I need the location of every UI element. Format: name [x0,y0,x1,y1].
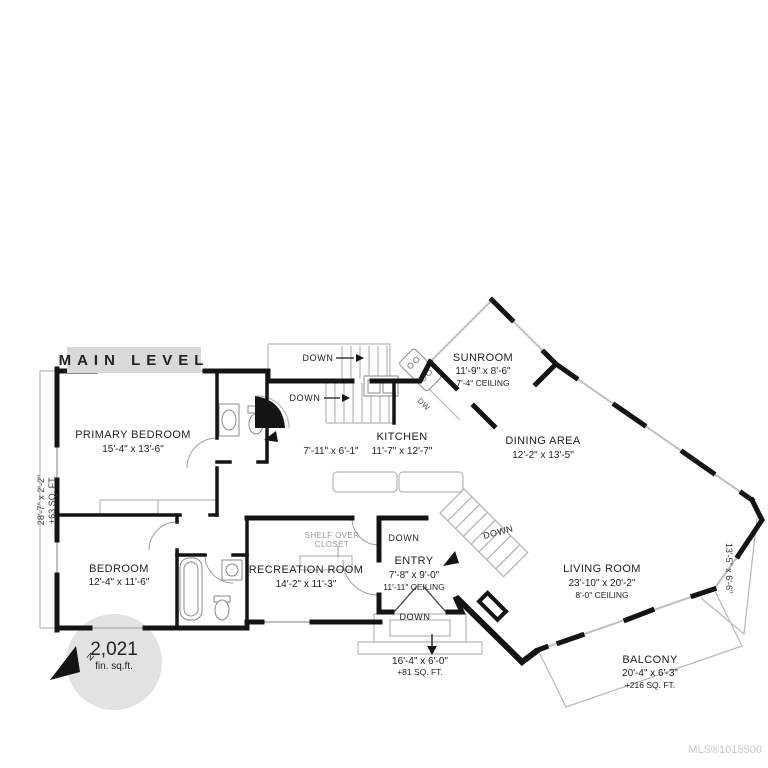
floor-plan-page: MAIN LEVEL PRIMARY BEDROOM 15'-4" x 13'-… [0,0,768,768]
down-arrow-entry-stair [443,551,459,566]
down-label-interior-stair: DOWN [290,393,321,403]
total-area-value: 2,021 [90,639,138,660]
left-deck-dims: 28'-7" x 2'-2" [36,475,46,525]
front-steps-inner [390,620,450,636]
front-steps-dims: 16'-4" x 6'-0" [392,656,448,667]
kitchen-label: KITCHEN [376,431,427,443]
entry-dims: 7'-8" x 9'-0" [389,570,440,581]
balcony-area: +216 SQ. FT. [625,680,675,690]
bath-toilet-icon [215,600,229,620]
mls-number: MLS®1015500 [688,744,762,756]
total-area-unit: fin. sq.ft. [95,661,133,672]
closet-lines [100,500,217,515]
bathtub-inner [184,562,198,616]
left-deck-area: +63 SQ. FT. [47,476,57,524]
ensuite-sink-icon [222,410,236,430]
dining-area-dims: 12'-2" x 13'-5" [512,450,574,461]
bath-sink-icon [226,564,238,576]
primary-bedroom-dims: 15'-4" x 13'-6" [102,444,164,455]
living-room-dims: 23'-10" x 20'-2" [568,578,636,589]
sunroom-label: SUNROOM [453,352,513,364]
sunroom-ceiling: 7'-4" CEILING [456,378,509,388]
dishwasher-icon: DW [416,396,432,412]
shelf-over-label: SHELF OVER [305,531,360,540]
sunroom-dims: 11'-9" x 8'-6" [455,366,511,377]
hall-dims: 7'-11" x 6'-1" [303,446,359,457]
dw-label: DW [416,396,432,412]
kitchen-island-left [333,472,397,492]
front-landing-outline [358,642,482,654]
down-label-exterior-stair: DOWN [303,353,334,363]
closet-label: CLOSET [315,540,349,549]
bedroom-dims: 12'-4" x 11'-6" [89,577,150,588]
kitchen-island-right [399,472,463,492]
living-room-label: LIVING ROOM [563,563,641,575]
down-label-entry: DOWN [389,533,420,543]
kitchen-dims: 11'-7" x 12'-7" [372,446,433,457]
balcony-dims: 20'-4" x 6'-3" [622,668,678,679]
floor-plan-canvas: MAIN LEVEL PRIMARY BEDROOM 15'-4" x 13'-… [0,0,768,768]
living-room-ceiling: 8'-0" CEILING [575,590,628,600]
page-title: MAIN LEVEL [59,352,210,369]
balcony-label: BALCONY [622,654,678,666]
dining-area-label: DINING AREA [505,435,581,447]
primary-bedroom-label: PRIMARY BEDROOM [75,429,191,441]
down-label-dining: DOWN [482,523,514,541]
recreation-room-label: RECREATION ROOM [249,564,364,576]
right-deck-dims: 13'-5" x 6'-6" [724,543,734,593]
down-arrow-interior-stair [342,394,350,402]
entry-label: ENTRY [394,555,433,567]
exterior-stair-treads [342,346,387,379]
front-steps-area: +81 SQ. FT. [397,667,443,677]
bedroom-label: BEDROOM [89,563,149,575]
recreation-room-dims: 14'-2" x 11'-3" [276,579,337,590]
down-label-front-steps: DOWN [400,612,431,622]
entry-ceiling: 11'-11" CEILING [383,582,445,592]
curved-stair-wall [255,396,285,428]
